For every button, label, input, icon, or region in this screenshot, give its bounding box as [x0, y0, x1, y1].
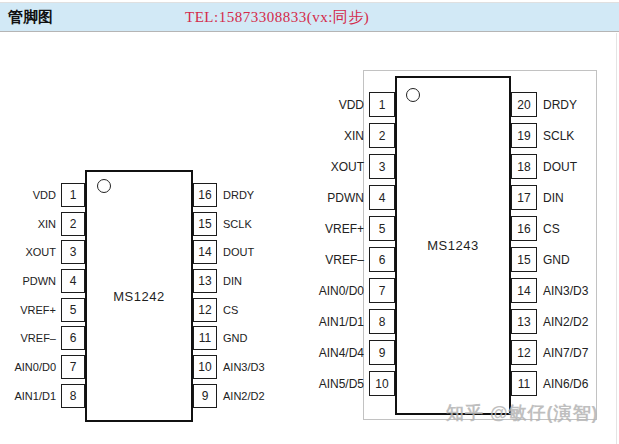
- pin-label: VREF–: [0, 326, 56, 350]
- pin-number-box: 7: [61, 355, 85, 379]
- pin-label: AIN0/D0: [0, 355, 56, 379]
- pin-label: AIN6/D6: [543, 371, 613, 396]
- pin-label: AIN5/D5: [268, 371, 364, 396]
- pin-label: AIN1/D1: [0, 384, 56, 408]
- pin-label: VREF–: [268, 247, 364, 272]
- pin-number-box: 10: [193, 355, 217, 379]
- pin-label: AIN1/D1: [268, 309, 364, 334]
- pin-number-box: 11: [193, 326, 217, 350]
- pin-label: DOUT: [543, 154, 613, 179]
- pin-label: DRDY: [543, 92, 613, 117]
- pin-number-box: 17: [511, 185, 537, 210]
- pin-label: VDD: [0, 183, 56, 207]
- pin-label: VDD: [268, 92, 364, 117]
- pin-number-box: 4: [369, 185, 395, 210]
- pin-number-box: 12: [193, 298, 217, 322]
- pin-number-box: 13: [193, 269, 217, 293]
- pin-number-box: 1: [369, 92, 395, 117]
- pin-number-box: 16: [193, 183, 217, 207]
- pin-number-box: 4: [61, 269, 85, 293]
- pin-label: AIN7/D7: [543, 340, 613, 365]
- pin-label-column-right: DRDYSCLKDOUTDINCSGNDAIN3/D3AIN2/D2AIN7/D…: [543, 92, 613, 396]
- page-title: 管脚图: [8, 8, 53, 27]
- pin-number-box: 8: [369, 309, 395, 334]
- pin-number-box: 2: [61, 212, 85, 236]
- pin-number-box: 2: [369, 123, 395, 148]
- pin-label: AIN2/D2: [543, 309, 613, 334]
- pin-label: PDWN: [0, 269, 56, 293]
- pin-box-column-left: 12345678910: [369, 92, 395, 396]
- table-border-line: [616, 33, 617, 444]
- header-tel: TEL:15873308833(vx:同步): [185, 8, 369, 27]
- pin-number-box: 20: [511, 92, 537, 117]
- zhihu-watermark: 知乎 @敏仔(演智): [446, 401, 599, 425]
- pin-number-box: 18: [511, 154, 537, 179]
- pin-number-box: 14: [511, 278, 537, 303]
- pin-number-box: 5: [369, 216, 395, 241]
- pin-box-column-right: 20191817161514131211: [511, 92, 537, 396]
- pin-number-box: 3: [369, 154, 395, 179]
- pin-label: VREF+: [268, 216, 364, 241]
- pin1-indicator-icon: [97, 179, 111, 193]
- pin-number-box: 11: [511, 371, 537, 396]
- pin-number-box: 12: [511, 340, 537, 365]
- pin1-indicator-icon: [406, 88, 420, 102]
- header-bar: 管脚图 TEL:15873308833(vx:同步): [0, 2, 619, 32]
- pin-label: CS: [543, 216, 613, 241]
- pin-number-box: 6: [61, 326, 85, 350]
- pin-number-box: 1: [61, 183, 85, 207]
- pin-box-column-left: 12345678: [61, 183, 85, 408]
- pin-number-box: 13: [511, 309, 537, 334]
- pin-label: SCLK: [543, 123, 613, 148]
- pin-number-box: 7: [369, 278, 395, 303]
- pin-label: AIN4/D4: [268, 340, 364, 365]
- pin-label: AIN0/D0: [268, 278, 364, 303]
- pin-label: XIN: [0, 212, 56, 236]
- pin-number-box: 10: [369, 371, 395, 396]
- pin-number-box: 9: [369, 340, 395, 365]
- pin-label: XOUT: [268, 154, 364, 179]
- chip-body: MS1243: [395, 76, 511, 415]
- pin-label: AIN3/D3: [543, 278, 613, 303]
- chip-name: MS1242: [113, 289, 164, 304]
- pin-number-box: 3: [61, 240, 85, 264]
- pin-label-column-left: VDDXINXOUTPDWNVREF+VREF–AIN0/D0AIN1/D1: [0, 183, 56, 408]
- pin-number-box: 6: [369, 247, 395, 272]
- pin-number-box: 14: [193, 240, 217, 264]
- pin-label: XOUT: [0, 240, 56, 264]
- pin-box-column-right: 161514131211109: [193, 183, 217, 408]
- pin-number-box: 9: [193, 384, 217, 408]
- pin-label: DIN: [543, 185, 613, 210]
- chip-body: MS1242: [85, 170, 193, 422]
- pin-label: VREF+: [0, 298, 56, 322]
- pin-number-box: 15: [511, 247, 537, 272]
- pin-label: XIN: [268, 123, 364, 148]
- pin-number-box: 19: [511, 123, 537, 148]
- pin-label-column-left: VDDXINXOUTPDWNVREF+VREF–AIN0/D0AIN1/D1AI…: [268, 92, 364, 396]
- page: 管脚图 TEL:15873308833(vx:同步) VDDXINXOUTPDW…: [0, 0, 619, 444]
- pin-label: GND: [543, 247, 613, 272]
- chip-name: MS1243: [427, 238, 478, 253]
- pin-number-box: 16: [511, 216, 537, 241]
- pin-label: PDWN: [268, 185, 364, 210]
- pin-number-box: 8: [61, 384, 85, 408]
- pin-number-box: 5: [61, 298, 85, 322]
- pin-number-box: 15: [193, 212, 217, 236]
